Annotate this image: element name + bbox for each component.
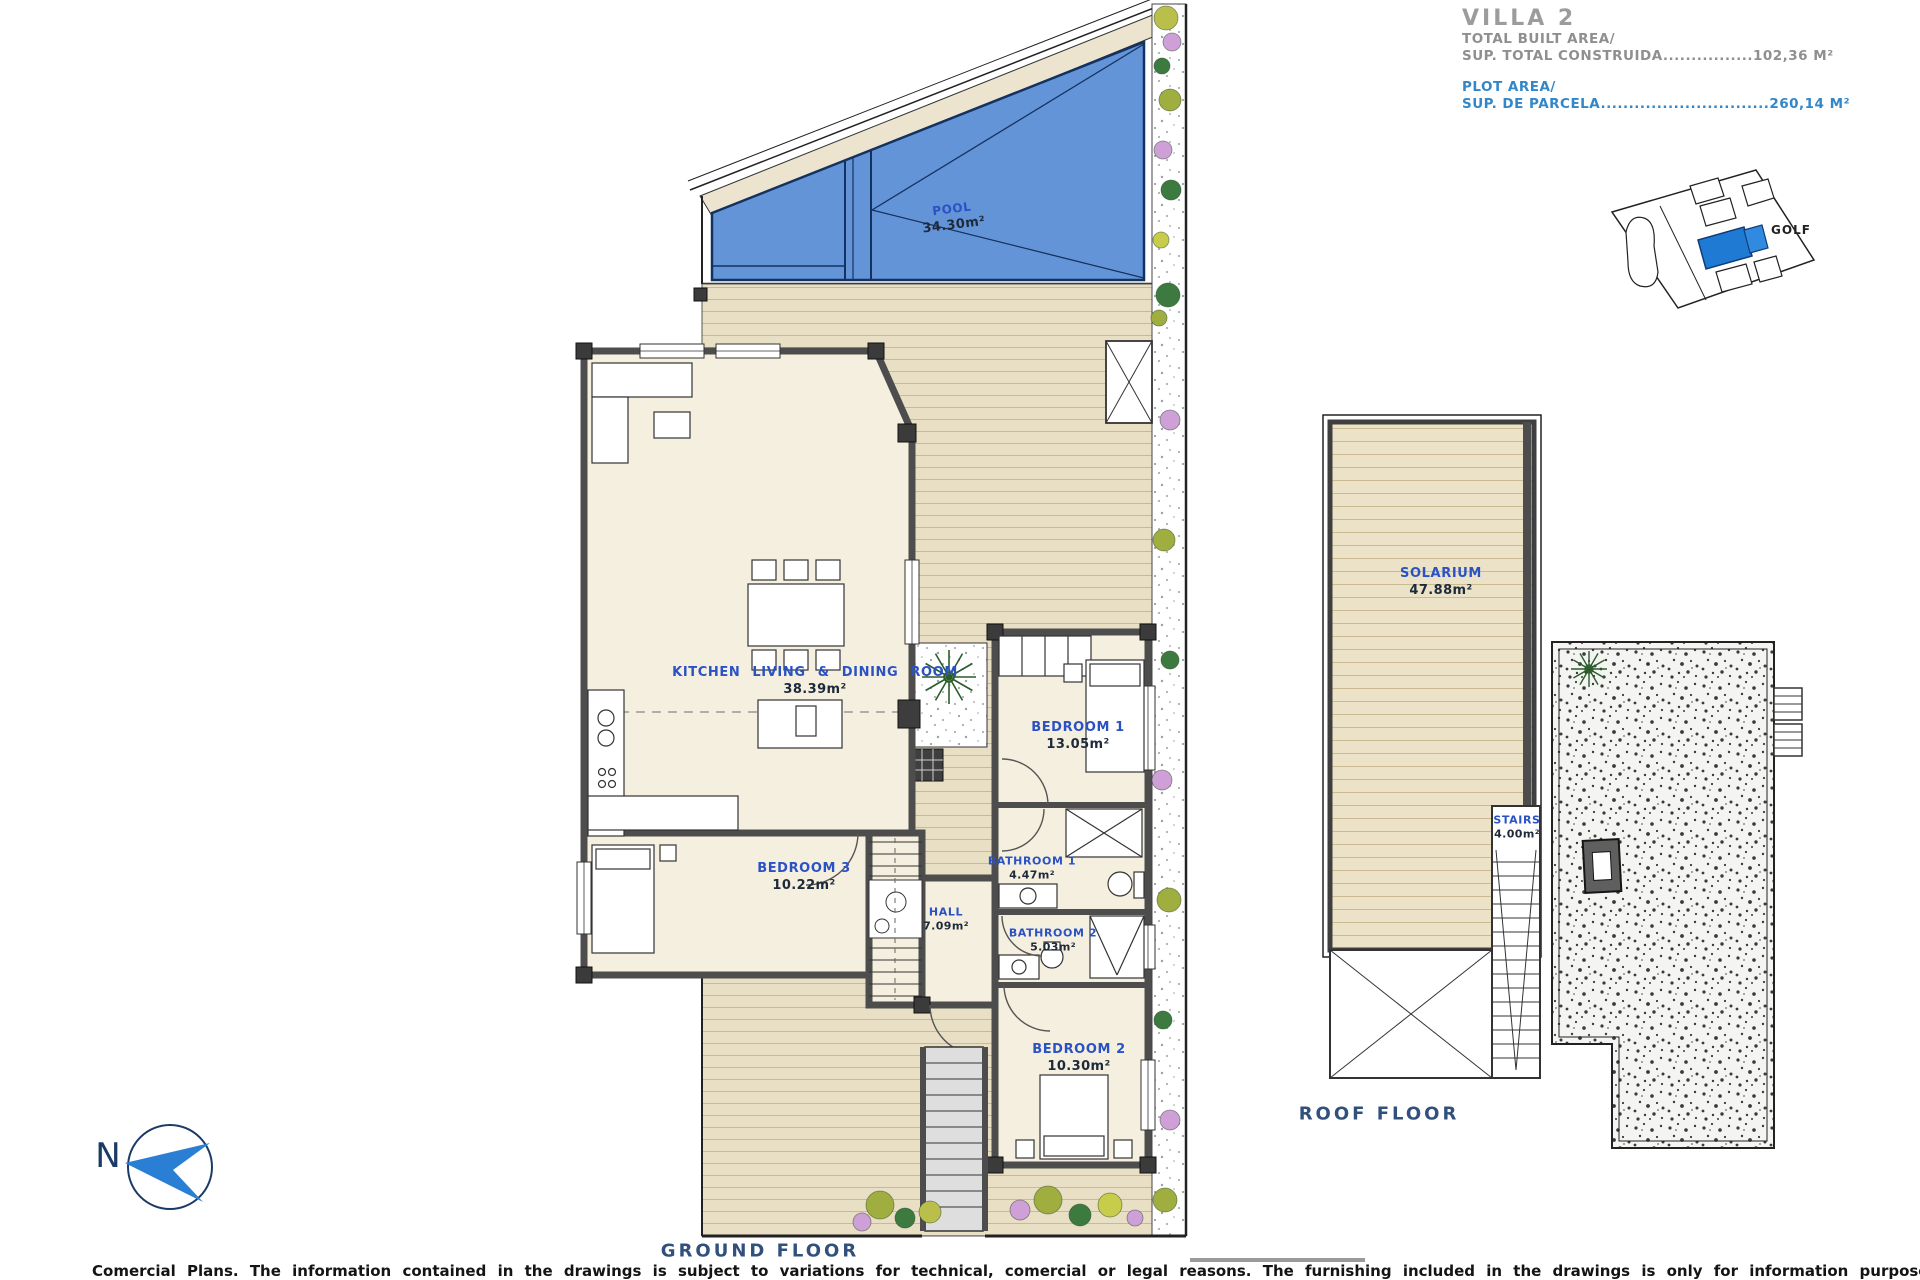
plot-area-label: PLOT AREA/ [1462, 79, 1882, 96]
solarium-label: SOLARIUM 47.88m² [1400, 566, 1482, 600]
roof-stairs [1492, 806, 1540, 1078]
bedroom1-label: BEDROOM 1 13.05m² [1031, 720, 1125, 754]
vegetation-strip [1151, 4, 1186, 1236]
ground-floor-caption: GROUND FLOOR [661, 1241, 859, 1262]
room-hall [922, 878, 995, 1005]
roof-pergola [1330, 950, 1492, 1078]
hall-label: HALL 7.09m² [923, 906, 969, 935]
roof-ac-units [1774, 688, 1802, 756]
bathroom2-label: BATHROOM 2 5.03m² [1009, 927, 1097, 956]
site-plan-map [1612, 170, 1814, 308]
north-letter: N [95, 1136, 120, 1176]
gravel-roof [1552, 642, 1802, 1148]
villa-title: VILLA 2 [1462, 6, 1882, 31]
bedroom2-label: BEDROOM 2 10.30m² [1032, 1042, 1126, 1076]
pool [712, 42, 1144, 280]
kitchen-label: KITCHEN LIVING & DINING ROOM 38.39m² [672, 665, 958, 699]
golf-label: GOLF [1771, 223, 1811, 237]
built-area-label: TOTAL BUILT AREA/ [1462, 31, 1882, 48]
bedroom3-label: BEDROOM 3 10.22m² [757, 861, 851, 895]
roof-floor-caption: ROOF FLOOR [1299, 1104, 1460, 1125]
chimney [1583, 839, 1622, 893]
plan-drawing [0, 0, 1920, 1280]
built-area-value: SUP. TOTAL CONSTRUIDA................102… [1462, 48, 1882, 65]
roof-floor-plan [1323, 415, 1802, 1148]
disclaimer-text: Comercial Plans. The information contain… [92, 1262, 1902, 1280]
terrace-shower-tray [1106, 341, 1152, 423]
floor-plan-sheet: VILLA 2 TOTAL BUILT AREA/ SUP. TOTAL CON… [0, 0, 1920, 1280]
stairs-label: STAIRS 4.00m² [1493, 814, 1540, 843]
bathroom1-label: BATHROOM 1 4.47m² [988, 855, 1076, 884]
plot-area-value: SUP. DE PARCELA.........................… [1462, 96, 1882, 113]
title-block: VILLA 2 TOTAL BUILT AREA/ SUP. TOTAL CON… [1462, 6, 1882, 113]
north-arrow [125, 1125, 212, 1209]
